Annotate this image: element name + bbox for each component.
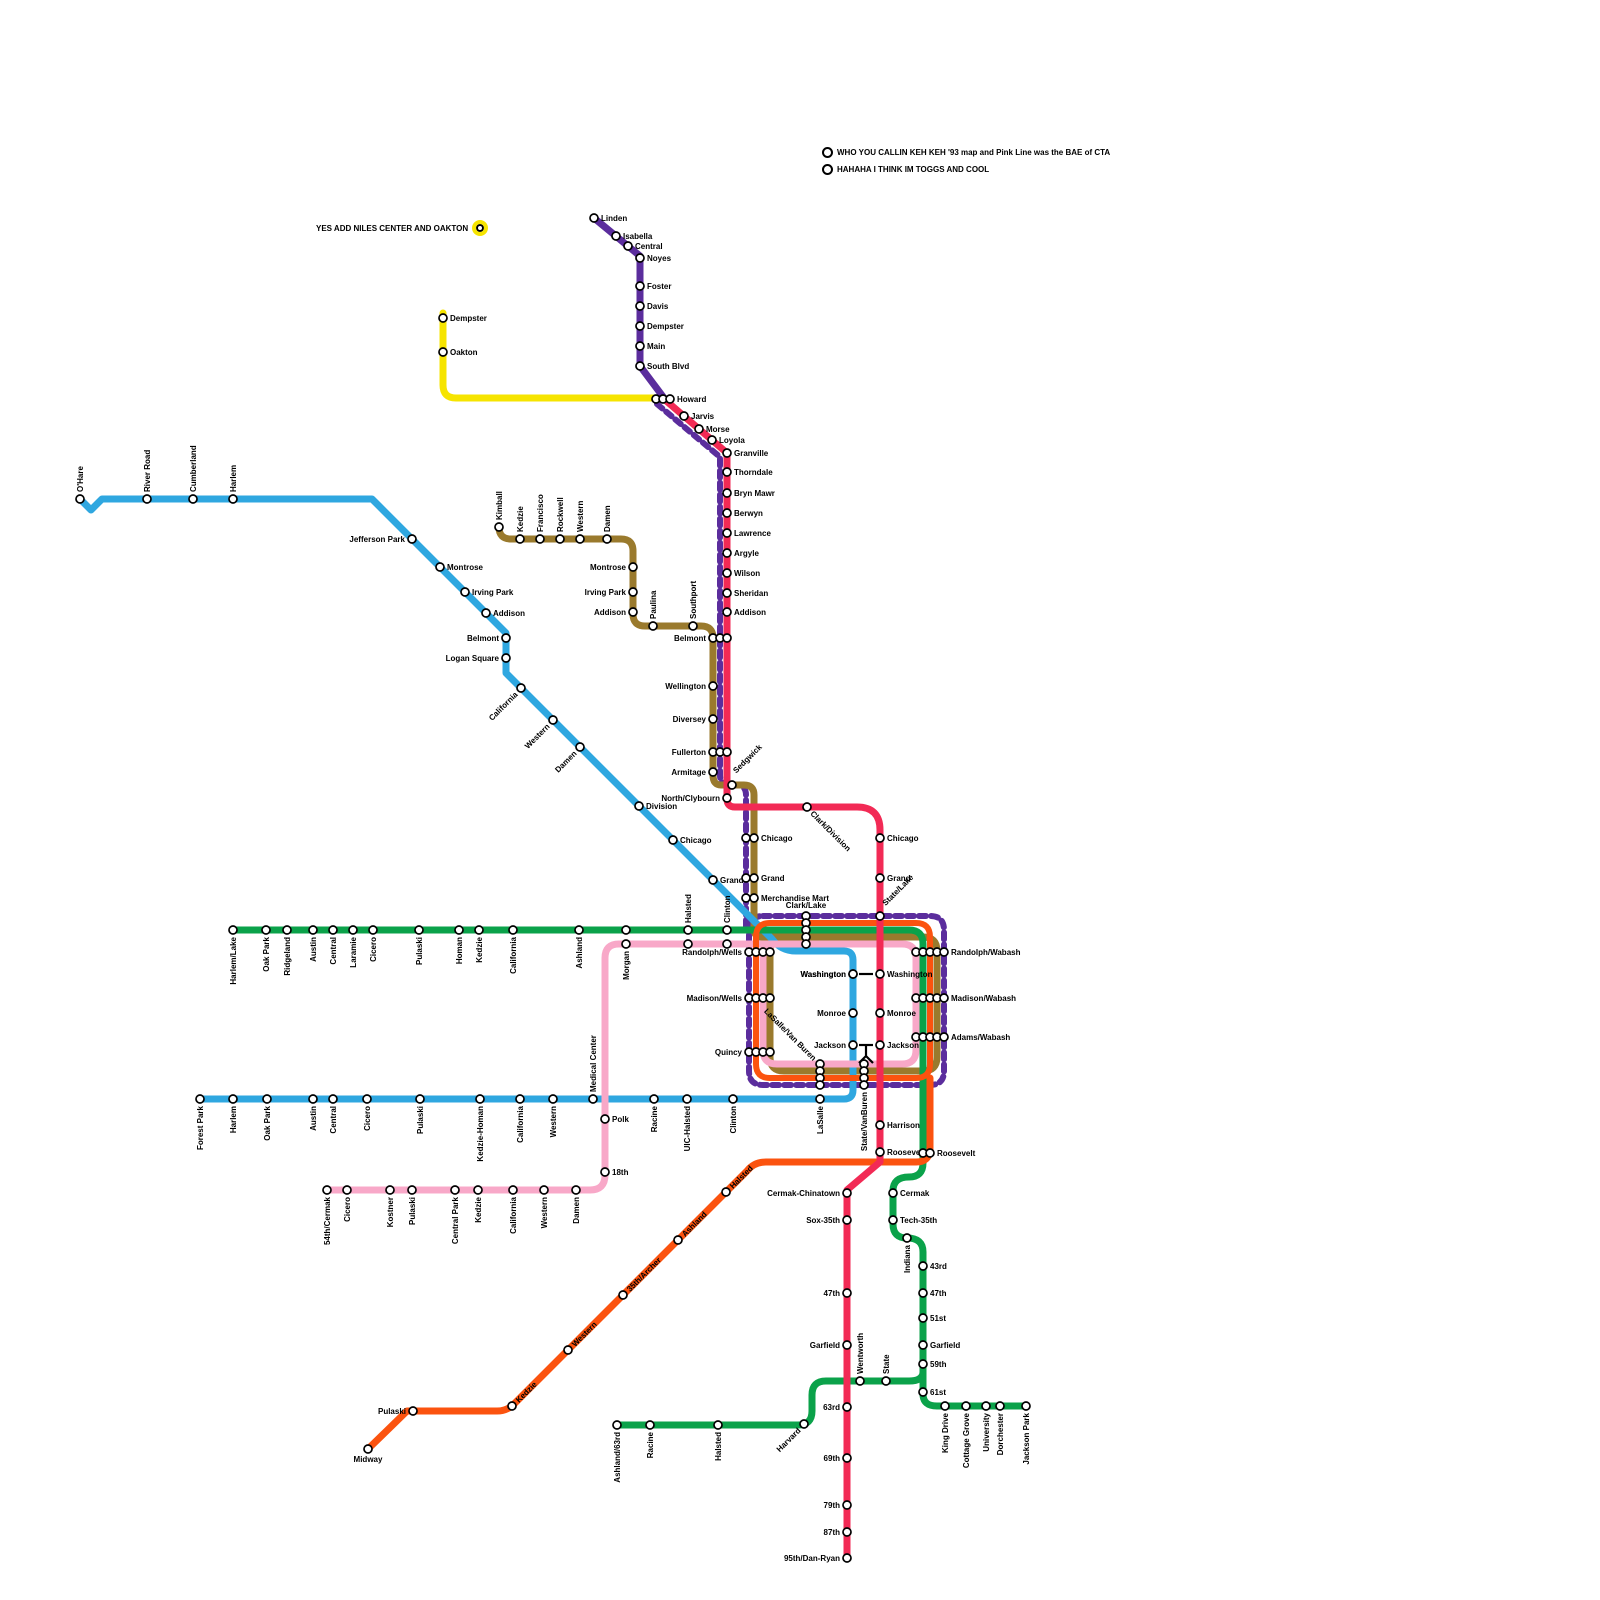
station-dot[interactable] <box>766 1048 774 1056</box>
station-halsted-orange[interactable]: Halsted <box>722 1164 755 1196</box>
station-pulaski-orange[interactable]: Pulaski <box>378 1407 417 1416</box>
station-dot[interactable] <box>876 1148 884 1156</box>
station-dot[interactable] <box>636 302 644 310</box>
station-state-vanburen-loop[interactable]: State/VanBuren <box>860 1060 869 1151</box>
station-dot[interactable] <box>309 926 317 934</box>
station-midway-orange[interactable]: Midway <box>354 1445 383 1464</box>
station-western-pink[interactable]: Western <box>540 1186 549 1228</box>
station-halsted-green-pink[interactable]: Halsted <box>684 894 693 948</box>
station-dot[interactable] <box>800 1420 808 1428</box>
station-dot[interactable] <box>76 495 84 503</box>
station-dot[interactable] <box>766 948 774 956</box>
station-addison-red[interactable]: Addison <box>723 608 766 617</box>
station-damen-pink[interactable]: Damen <box>572 1186 581 1224</box>
station-berwyn-red[interactable]: Berwyn <box>723 509 763 518</box>
station-dot[interactable] <box>940 948 948 956</box>
station-homan-green[interactable]: Homan <box>455 926 464 964</box>
station-dot[interactable] <box>709 682 717 690</box>
station-medical-center-blue[interactable]: Medical Center <box>589 1035 598 1103</box>
station-dot[interactable] <box>940 1033 948 1041</box>
station-dot[interactable] <box>723 748 731 756</box>
station-river-road-blue[interactable]: River Road <box>143 450 152 503</box>
station-dot[interactable] <box>601 1115 609 1123</box>
station-noyes-purple[interactable]: Noyes <box>636 254 672 263</box>
station-dot[interactable] <box>742 874 750 882</box>
station-garfield-red[interactable]: Garfield <box>810 1341 851 1350</box>
station-dot[interactable] <box>709 768 717 776</box>
station-morse-red[interactable]: Morse <box>695 425 730 434</box>
station-dot[interactable] <box>843 1289 851 1297</box>
station-dot[interactable] <box>572 1186 580 1194</box>
station-dot[interactable] <box>919 1341 927 1349</box>
station-oak-park-blue[interactable]: Oak Park <box>263 1095 272 1141</box>
station-kedzie-brown[interactable]: Kedzie <box>516 506 525 543</box>
station-dot[interactable] <box>723 608 731 616</box>
station-austin-blue[interactable]: Austin <box>309 1095 318 1131</box>
station-chicago-red[interactable]: Chicago <box>876 834 919 843</box>
station-kedzie-homan-blue[interactable]: Kedzie-Homan <box>476 1095 485 1162</box>
station-95th-dan-ryan-red[interactable]: 95th/Dan-Ryan <box>784 1554 851 1563</box>
station-dot[interactable] <box>622 926 630 934</box>
station-dot[interactable] <box>636 322 644 330</box>
station-dot[interactable] <box>723 468 731 476</box>
station-central-blue[interactable]: Central <box>329 1095 338 1134</box>
station-dot[interactable] <box>436 563 444 571</box>
station-dot[interactable] <box>882 1377 890 1385</box>
station-jackson-park-green[interactable]: Jackson Park <box>1022 1402 1031 1465</box>
station-dot[interactable] <box>589 1095 597 1103</box>
station-morgan-green-pink[interactable]: Morgan <box>622 926 631 980</box>
station-dot[interactable] <box>283 926 291 934</box>
station-dot[interactable] <box>482 609 490 617</box>
station-dot[interactable] <box>612 232 620 240</box>
station-43rd-green[interactable]: 43rd <box>919 1262 947 1271</box>
station-dot[interactable] <box>619 1291 627 1299</box>
station-irving-park-brown[interactable]: Irving Park <box>585 588 637 597</box>
station-western-brown[interactable]: Western <box>576 500 585 543</box>
station-dot[interactable] <box>536 535 544 543</box>
station-pulaski-green[interactable]: Pulaski <box>415 926 424 965</box>
station-dot[interactable] <box>919 1388 927 1396</box>
station-dot[interactable] <box>229 926 237 934</box>
station-dot[interactable] <box>666 395 674 403</box>
station-cermak-chinatown-red[interactable]: Cermak-Chinatown <box>767 1189 851 1198</box>
station-dot[interactable] <box>849 970 857 978</box>
station-damen-blue[interactable]: Damen <box>553 743 584 774</box>
station-dot[interactable] <box>386 1186 394 1194</box>
station-dot[interactable] <box>229 495 237 503</box>
station-addison-blue[interactable]: Addison <box>482 609 525 618</box>
station-dot[interactable] <box>323 1186 331 1194</box>
station-kostner-pink[interactable]: Kostner <box>386 1186 395 1227</box>
station-harlem-lake-green[interactable]: Harlem/Lake <box>229 926 238 985</box>
station-dot[interactable] <box>343 1186 351 1194</box>
station-racine-blue[interactable]: Racine <box>650 1095 659 1132</box>
station-paulina-brown[interactable]: Paulina <box>649 590 658 630</box>
station-dot[interactable] <box>680 412 688 420</box>
station-dot[interactable] <box>196 1095 204 1103</box>
station-ashland-63rd-green[interactable]: Ashland/63rd <box>613 1421 622 1483</box>
station-dot[interactable] <box>695 425 703 433</box>
station-argyle-red[interactable]: Argyle <box>723 549 759 558</box>
station-dot[interactable] <box>646 1421 654 1429</box>
station-dot[interactable] <box>540 1186 548 1194</box>
station-dot[interactable] <box>576 743 584 751</box>
station-dempster-yellow[interactable]: Dempster <box>439 314 487 323</box>
station-dot[interactable] <box>709 715 717 723</box>
station-dot[interactable] <box>549 1095 557 1103</box>
station-dot[interactable] <box>876 1009 884 1017</box>
station-69th-red[interactable]: 69th <box>824 1454 851 1463</box>
station-dot[interactable] <box>876 912 884 920</box>
station-diversey-brown[interactable]: Diversey <box>673 715 717 724</box>
station-dot[interactable] <box>919 1289 927 1297</box>
station-dot[interactable] <box>843 1189 851 1197</box>
station-dot[interactable] <box>982 1402 990 1410</box>
station-dot[interactable] <box>941 1402 949 1410</box>
station-dot[interactable] <box>723 569 731 577</box>
station-dot[interactable] <box>601 1168 609 1176</box>
station-79th-red[interactable]: 79th <box>824 1501 851 1510</box>
station-damen-brown[interactable]: Damen <box>603 505 612 543</box>
station-59th-green[interactable]: 59th <box>919 1360 947 1369</box>
station-laramie-green[interactable]: Laramie <box>349 926 358 968</box>
station-dot[interactable] <box>843 1454 851 1462</box>
station-dot[interactable] <box>816 1095 824 1103</box>
station-cumberland-blue[interactable]: Cumberland <box>189 445 198 503</box>
station-rockwell-brown[interactable]: Rockwell <box>556 497 565 543</box>
station-dot[interactable] <box>876 970 884 978</box>
station-18th-pink[interactable]: 18th <box>601 1168 629 1177</box>
station-dot[interactable] <box>263 1095 271 1103</box>
station-dot[interactable] <box>849 1009 857 1017</box>
station-ashland-orange[interactable]: Ashland <box>674 1210 709 1244</box>
station-logan-square-blue[interactable]: Logan Square <box>446 654 510 663</box>
station-california-blue[interactable]: California <box>516 1095 525 1143</box>
station-o-hare-blue[interactable]: O'Hare <box>76 466 85 503</box>
station-dot[interactable] <box>408 535 416 543</box>
station-dot[interactable] <box>843 1554 851 1562</box>
station-dot[interactable] <box>919 1360 927 1368</box>
station-pulaski-blue[interactable]: Pulaski <box>416 1095 425 1134</box>
station-dot[interactable] <box>439 314 447 322</box>
station-sox-35th-red[interactable]: Sox-35th <box>806 1216 851 1225</box>
station-dot[interactable] <box>723 589 731 597</box>
station-polk-pink[interactable]: Polk <box>601 1115 629 1124</box>
station-chicago-brown-purple[interactable]: Chicago <box>742 834 793 843</box>
station-dot[interactable] <box>455 926 463 934</box>
station-dot[interactable] <box>189 495 197 503</box>
station-dot[interactable] <box>750 834 758 842</box>
station-harrison-red[interactable]: Harrison <box>876 1121 920 1130</box>
station-montrose-brown[interactable]: Montrose <box>590 563 637 572</box>
station-dot[interactable] <box>889 1189 897 1197</box>
station-dot[interactable] <box>556 535 564 543</box>
station-dot[interactable] <box>708 436 716 444</box>
station-dot[interactable] <box>816 1081 824 1089</box>
station-dot[interactable] <box>590 214 598 222</box>
station-dot[interactable] <box>649 622 657 630</box>
station-dot[interactable] <box>635 802 643 810</box>
station-dot[interactable] <box>502 654 510 662</box>
station-belmont-blue[interactable]: Belmont <box>467 634 510 643</box>
station-dot[interactable] <box>622 940 630 948</box>
station-dot[interactable] <box>876 1121 884 1129</box>
station-dot[interactable] <box>636 362 644 370</box>
station-dot[interactable] <box>860 1081 868 1089</box>
station-dot[interactable] <box>926 1149 934 1157</box>
station-state-green[interactable]: State <box>882 1354 891 1385</box>
station-dot[interactable] <box>843 1501 851 1509</box>
station-pulaski-pink[interactable]: Pulaski <box>408 1186 417 1225</box>
station-dot[interactable] <box>508 1402 516 1410</box>
station-dot[interactable] <box>636 254 644 262</box>
station-kedzie-pink[interactable]: Kedzie <box>474 1186 483 1223</box>
station-dot[interactable] <box>723 940 731 948</box>
station-dot[interactable] <box>750 874 758 882</box>
station-dot[interactable] <box>723 489 731 497</box>
station-jackson-blue[interactable]: Jackson <box>814 1041 857 1050</box>
station-dot[interactable] <box>669 836 677 844</box>
station-dot[interactable] <box>889 1216 897 1224</box>
station-quincy-loop[interactable]: Quincy <box>715 1048 774 1057</box>
station-main-purple[interactable]: Main <box>636 342 665 351</box>
station-chicago-blue[interactable]: Chicago <box>669 836 712 845</box>
station-dot[interactable] <box>262 926 270 934</box>
station-dot[interactable] <box>363 1095 371 1103</box>
station-dot[interactable] <box>329 926 337 934</box>
station-dot[interactable] <box>329 1095 337 1103</box>
station-47th-green[interactable]: 47th <box>919 1289 947 1298</box>
station-dot[interactable] <box>709 876 717 884</box>
station-grand-blue[interactable]: Grand <box>709 876 744 885</box>
station-jackson-red[interactable]: Jackson <box>876 1041 919 1050</box>
station-dot[interactable] <box>636 282 644 290</box>
station-howard-red-purple-yellow[interactable]: Howard <box>652 395 706 404</box>
station-cicero-pink[interactable]: Cicero <box>343 1186 352 1222</box>
station-dot[interactable] <box>802 940 810 948</box>
station-dot[interactable] <box>919 1314 927 1322</box>
station-fullerton-red-brown-purple[interactable]: Fullerton <box>672 748 731 757</box>
station-dot[interactable] <box>843 1528 851 1536</box>
station-dot[interactable] <box>722 1188 730 1196</box>
station-cottage-grove-green[interactable]: Cottage Grove <box>962 1402 971 1468</box>
station-dot[interactable] <box>495 523 503 531</box>
station-dot[interactable] <box>364 1445 372 1453</box>
station-ashland-green[interactable]: Ashland <box>575 926 584 969</box>
station-dot[interactable] <box>723 926 731 934</box>
station-dot[interactable] <box>843 1216 851 1224</box>
station-wellington-brown[interactable]: Wellington <box>665 682 717 691</box>
station-washington-blue-subway[interactable]: Washington <box>801 970 857 979</box>
station-dot[interactable] <box>517 684 525 692</box>
station-dot[interactable] <box>575 926 583 934</box>
station-dot[interactable] <box>629 608 637 616</box>
station-dot[interactable] <box>689 622 697 630</box>
station-dot[interactable] <box>876 874 884 882</box>
station-jarvis-red[interactable]: Jarvis <box>680 412 715 421</box>
station-51st-green[interactable]: 51st <box>919 1314 946 1323</box>
station-austin-green[interactable]: Austin <box>309 926 318 962</box>
station-dot[interactable] <box>516 1095 524 1103</box>
station-dot[interactable] <box>729 1095 737 1103</box>
station-wilson-red[interactable]: Wilson <box>723 569 760 578</box>
station-california-blue[interactable]: California <box>487 684 525 723</box>
station-bryn-mawr-red[interactable]: Bryn Mawr <box>723 489 775 498</box>
station-racine-green[interactable]: Racine <box>646 1421 655 1458</box>
station-dot[interactable] <box>502 634 510 642</box>
station-western-blue[interactable]: Western <box>523 716 557 751</box>
station-dot[interactable] <box>683 1095 691 1103</box>
station-dot[interactable] <box>475 926 483 934</box>
station-dot[interactable] <box>723 529 731 537</box>
station-randolph-wabash-loop[interactable]: Randolph/Wabash <box>912 948 1021 957</box>
station-granville-red[interactable]: Granville <box>723 449 769 458</box>
station-lasalle-blue[interactable]: LaSalle <box>816 1095 825 1134</box>
station-dot[interactable] <box>876 1041 884 1049</box>
station-roosevelt-green-orange[interactable]: Roosevelt <box>919 1149 976 1158</box>
station-davis-purple[interactable]: Davis <box>636 302 669 311</box>
station-halsted-green[interactable]: Halsted <box>714 1421 723 1461</box>
station-dot[interactable] <box>509 1186 517 1194</box>
station-dot[interactable] <box>903 1234 911 1242</box>
station-western-orange[interactable]: Western <box>564 1320 599 1354</box>
station-uic-halsted-blue[interactable]: UIC-Halsted <box>683 1095 692 1151</box>
station-dot[interactable] <box>650 1095 658 1103</box>
station-dot[interactable] <box>876 834 884 842</box>
station-clinton-blue[interactable]: Clinton <box>729 1095 738 1134</box>
station-dot[interactable] <box>143 495 151 503</box>
station-dot[interactable] <box>416 1095 424 1103</box>
station-madison-wells-loop[interactable]: Madison/Wells <box>687 994 774 1003</box>
station-kedzie-orange[interactable]: Kedzie <box>508 1380 539 1410</box>
station-dot[interactable] <box>723 794 731 802</box>
station-california-pink[interactable]: California <box>509 1186 518 1234</box>
station-dot[interactable] <box>742 834 750 842</box>
station-kimball-brown[interactable]: Kimball <box>495 491 504 531</box>
station-dot[interactable] <box>962 1402 970 1410</box>
station-randolph-wells-loop[interactable]: Randolph/Wells <box>682 948 774 957</box>
station-cermak-green[interactable]: Cermak <box>889 1189 930 1198</box>
station-54th-cermak-pink[interactable]: 54th/Cermak <box>323 1186 332 1245</box>
station-loyola-red[interactable]: Loyola <box>708 436 745 445</box>
station-dot[interactable] <box>849 1041 857 1049</box>
station-dot[interactable] <box>766 994 774 1002</box>
station-dot[interactable] <box>636 342 644 350</box>
station-dot[interactable] <box>229 1095 237 1103</box>
station-dot[interactable] <box>996 1402 1004 1410</box>
station-armitage-brown[interactable]: Armitage <box>671 768 717 777</box>
station-thorndale-red[interactable]: Thorndale <box>723 468 773 477</box>
station-dot[interactable] <box>843 1403 851 1411</box>
station-king-drive-green[interactable]: King Drive <box>941 1402 950 1453</box>
station-dot[interactable] <box>451 1186 459 1194</box>
station-63rd-red[interactable]: 63rd <box>823 1403 851 1412</box>
station-dot[interactable] <box>803 803 811 811</box>
station-87th-red[interactable]: 87th <box>824 1528 851 1537</box>
station-sheridan-red[interactable]: Sheridan <box>723 589 768 598</box>
station-monroe-blue[interactable]: Monroe <box>817 1009 857 1018</box>
station-dot[interactable] <box>742 894 750 902</box>
station-central-purple[interactable]: Central <box>624 242 663 251</box>
station-monroe-red[interactable]: Monroe <box>876 1009 916 1018</box>
station-dot[interactable] <box>369 926 377 934</box>
station-dot[interactable] <box>856 1377 864 1385</box>
station-indiana-green[interactable]: Indiana <box>903 1234 912 1273</box>
station-western-blue[interactable]: Western <box>549 1095 558 1137</box>
station-oak-park-green[interactable]: Oak Park <box>262 926 271 972</box>
station-dot[interactable] <box>461 588 469 596</box>
station-dot[interactable] <box>723 634 731 642</box>
station-dot[interactable] <box>576 535 584 543</box>
station-dot[interactable] <box>549 716 557 724</box>
station-addison-brown[interactable]: Addison <box>594 608 637 617</box>
station-california-green[interactable]: California <box>509 926 518 974</box>
station-dot[interactable] <box>349 926 357 934</box>
station-dot[interactable] <box>684 926 692 934</box>
station-cicero-blue[interactable]: Cicero <box>363 1095 372 1131</box>
station-dot[interactable] <box>940 994 948 1002</box>
station-dot[interactable] <box>728 781 736 789</box>
station-dot[interactable] <box>674 1236 682 1244</box>
station-dot[interactable] <box>409 1407 417 1415</box>
station-dempster-purple[interactable]: Dempster <box>636 322 684 331</box>
station-garfield-green[interactable]: Garfield <box>919 1341 960 1350</box>
station-dot[interactable] <box>474 1186 482 1194</box>
station-dot[interactable] <box>309 1095 317 1103</box>
station-dot[interactable] <box>684 940 692 948</box>
station-dot[interactable] <box>509 926 517 934</box>
station-dot[interactable] <box>613 1421 621 1429</box>
station-dot[interactable] <box>624 242 632 250</box>
station-dot[interactable] <box>919 1262 927 1270</box>
station-dot[interactable] <box>629 563 637 571</box>
station-clinton-green-pink[interactable]: Clinton <box>723 895 732 948</box>
station-harlem-blue[interactable]: Harlem <box>229 465 238 503</box>
station-dot[interactable] <box>564 1346 572 1354</box>
station-oakton-yellow[interactable]: Oakton <box>439 348 478 357</box>
station-dot[interactable] <box>723 449 731 457</box>
station-forest-park-blue[interactable]: Forest Park <box>196 1095 205 1150</box>
station-dot[interactable] <box>1022 1402 1030 1410</box>
station-grand-brown-purple[interactable]: Grand <box>742 874 785 883</box>
station-dot[interactable] <box>603 535 611 543</box>
station-dot[interactable] <box>629 588 637 596</box>
station-dot[interactable] <box>723 549 731 557</box>
station-dot[interactable] <box>476 1095 484 1103</box>
station-kedzie-green[interactable]: Kedzie <box>475 926 484 963</box>
station-linden-purple[interactable]: Linden <box>590 214 627 223</box>
station-wentworth-green[interactable]: Wentworth <box>856 1333 865 1385</box>
station-47th-red[interactable]: 47th <box>824 1289 851 1298</box>
station-dot[interactable] <box>408 1186 416 1194</box>
station-dot[interactable] <box>439 348 447 356</box>
station-dot[interactable] <box>415 926 423 934</box>
station-madison-wabash-loop[interactable]: Madison/Wabash <box>912 994 1016 1003</box>
station-61st-green[interactable]: 61st <box>919 1388 946 1397</box>
station-central-green[interactable]: Central <box>329 926 338 965</box>
station-belmont-red-brown-purple[interactable]: Belmont <box>674 634 731 643</box>
station-cicero-green[interactable]: Cicero <box>369 926 378 962</box>
station-dot[interactable] <box>516 535 524 543</box>
station-foster-purple[interactable]: Foster <box>636 282 671 291</box>
station-clark-division-red[interactable]: Clark/Division <box>803 803 853 853</box>
station-central-park-pink[interactable]: Central Park <box>451 1186 460 1244</box>
station-washington-red[interactable]: Washington <box>876 970 933 979</box>
station-35th-archer-orange[interactable]: 35th/Archer <box>619 1256 663 1299</box>
station-dorchester-green[interactable]: Dorchester <box>996 1402 1005 1455</box>
station-division-blue[interactable]: Division <box>635 802 677 811</box>
